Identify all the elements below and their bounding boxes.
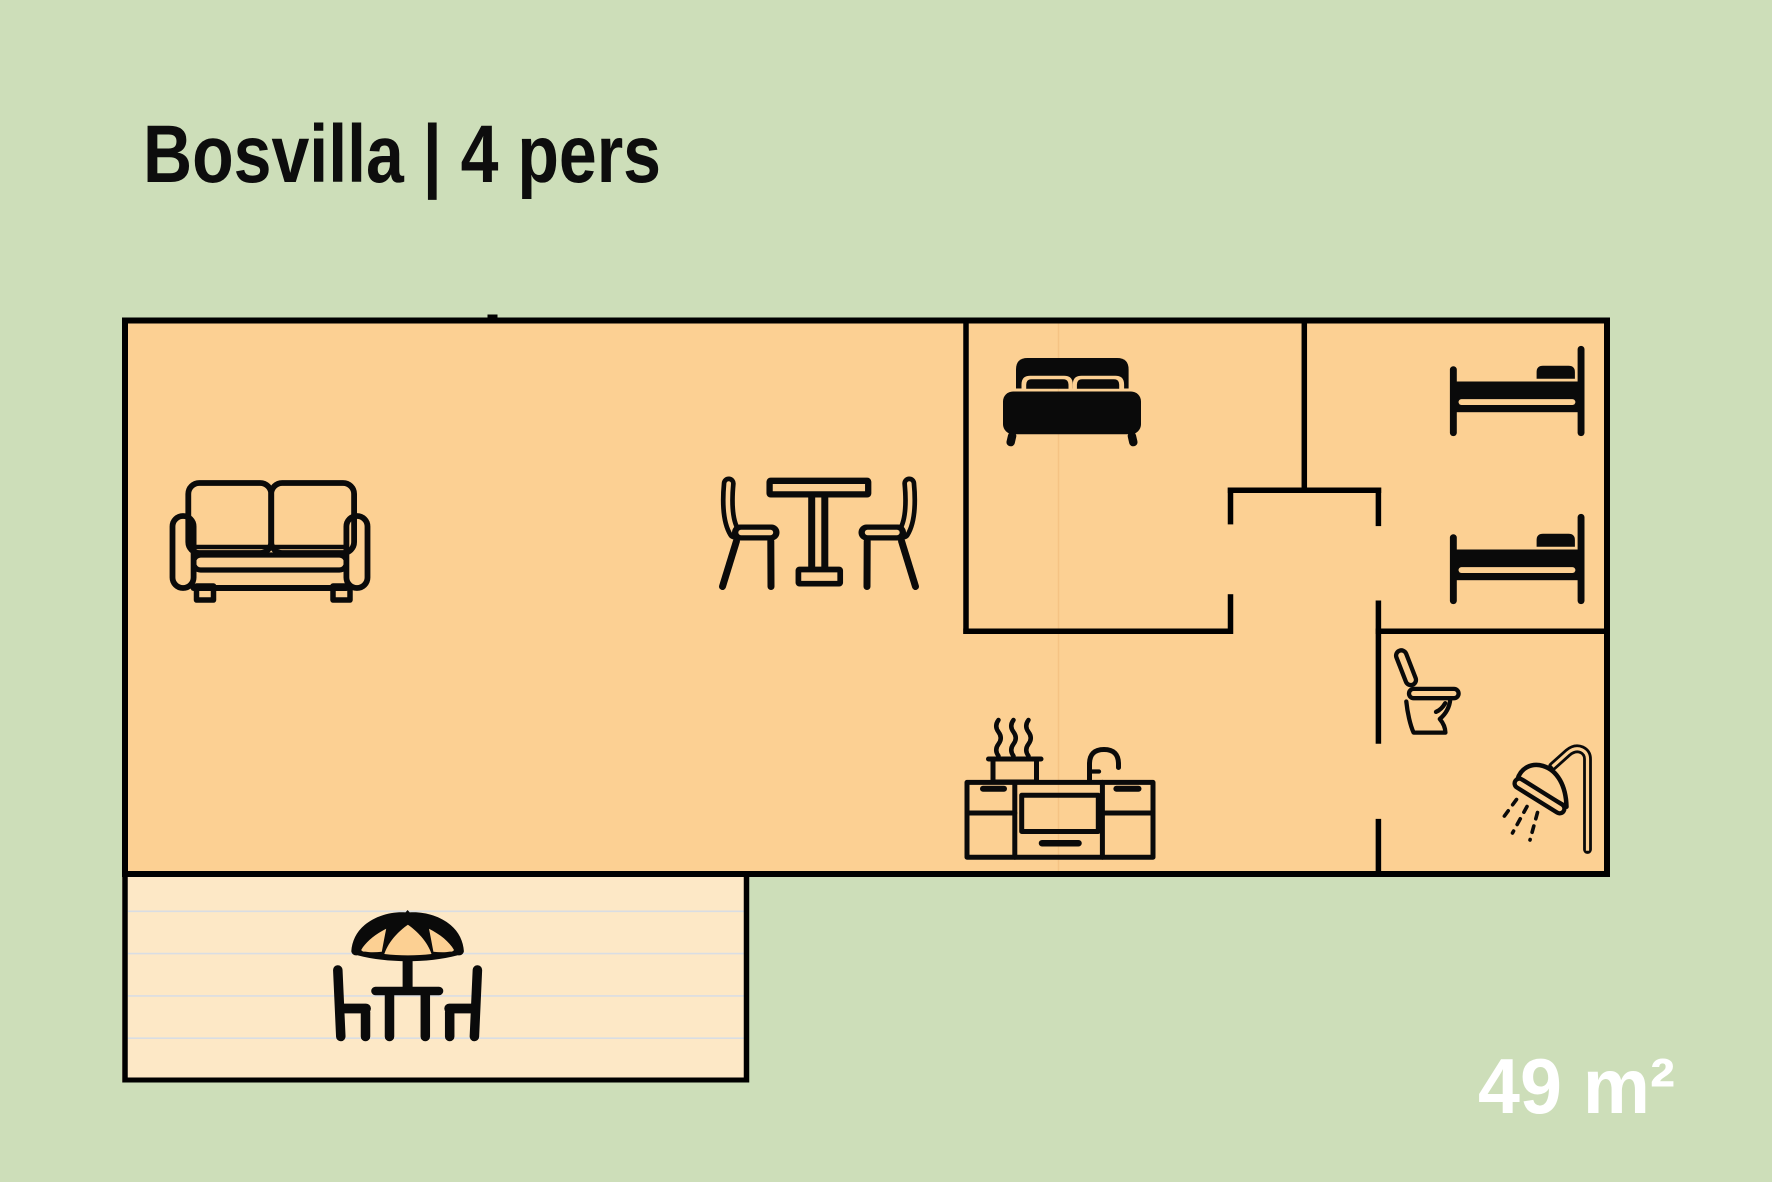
svg-text:Bosvilla | 4 pers: Bosvilla | 4 pers	[143, 109, 661, 201]
svg-text:49 m²: 49 m²	[1478, 1042, 1675, 1130]
